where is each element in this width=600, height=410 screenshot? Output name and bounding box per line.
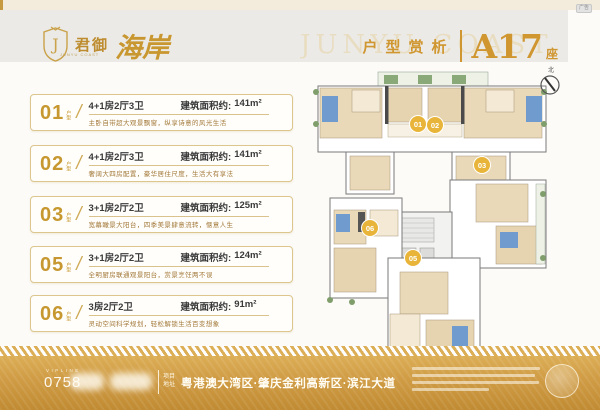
svg-text:06: 06 (366, 224, 374, 233)
unit-number-tag: 户型 (65, 212, 70, 222)
title-divider (460, 30, 462, 62)
divider-slash: / (76, 102, 81, 124)
unit-number-tag: 户型 (65, 311, 70, 321)
footer-stripe-band (0, 346, 600, 356)
disclaimer-line (412, 374, 535, 377)
section-title: 户型赏析 (362, 36, 454, 57)
unit-card-05: 05 户型 / 3+1房2厅2卫建筑面积约:124m² 全明厨房联通观景阳台，赏… (30, 246, 293, 283)
disclaimer-text (412, 367, 540, 395)
spec-underline (89, 216, 269, 217)
brand-seal-icon (545, 364, 579, 398)
unit-number-tag: 户型 (65, 110, 70, 120)
unit-number: 05 (40, 255, 64, 275)
area-label: 建筑面积约: (181, 98, 232, 112)
unit-spec: 4+1房2厅3卫 (89, 98, 181, 112)
spec-underline (89, 165, 269, 166)
unit-number-tag: 户型 (65, 161, 70, 171)
address-tag-line2: 地址 (163, 381, 175, 389)
unit-card-02: 02 户型 / 4+1房2厅3卫建筑面积约:141m² 奢阔大四房配置，豪华居住… (30, 145, 293, 182)
address-tag: 项目 地址 (163, 373, 175, 390)
unit-badge-06: 06 (362, 220, 379, 237)
area-label: 建筑面积约: (181, 250, 232, 264)
footer-divider (158, 370, 159, 394)
unit-card-03: 03 户型 / 3+1房2厅2卫建筑面积约:125m² 宽幕瞰景大阳台，四季美景… (30, 196, 293, 233)
area-value: 125m² (234, 200, 261, 214)
unit-spec: 3房2厅2卫 (89, 299, 181, 313)
building-number: A17 (471, 30, 543, 63)
unit-description: 奢阔大四房配置，豪华居住尺度，生活大有享法 (89, 168, 283, 178)
svg-text:北: 北 (548, 66, 554, 74)
area-label: 建筑面积约: (181, 200, 232, 214)
top-cream-strip (0, 0, 600, 10)
unit-description: 主卧自带超大观景飘窗，纵享诗意的风光生活 (89, 117, 283, 127)
svg-text:03: 03 (478, 161, 486, 170)
area-value: 91m² (234, 299, 256, 313)
unit-number: 06 (40, 304, 64, 324)
floorplan-drawing: 01 02 03 06 05 (300, 62, 550, 350)
footer-gold-bar: VIPLINE 0758 项目 地址 粤港澳大湾区·肇庆金利高新区·滨江大道 (0, 356, 600, 410)
header-band: JUNYU COAST J 君御 海岸 JUNYU COAST 户型赏析 A17… (0, 10, 568, 62)
ad-badge: 广告 (576, 4, 592, 13)
project-address: 粤港澳大湾区·肇庆金利高新区·滨江大道 (181, 375, 396, 391)
unit-number-tag: 户型 (65, 262, 70, 272)
unit-card-06: 06 户型 / 3房2厅2卫建筑面积约:91m² 灵动空间科学规划，轻松解锁生活… (30, 295, 293, 332)
area-label: 建筑面积约: (181, 299, 232, 313)
brand-logo: J 君御 海岸 (42, 24, 169, 68)
unit-spec: 4+1房2厅3卫 (89, 149, 181, 163)
divider-slash: / (76, 254, 81, 276)
area-value: 141m² (234, 149, 261, 163)
area-label: 建筑面积约: (181, 149, 232, 163)
unit-description: 宽幕瞰景大阳台，四季美景肆意流转，惬意人生 (89, 219, 283, 229)
unit-spec: 3+1房2厅2卫 (89, 200, 181, 214)
unit-badge-02: 02 (427, 117, 444, 134)
divider-slash: / (76, 153, 81, 175)
unit-badge-03: 03 (474, 157, 491, 174)
svg-text:01: 01 (414, 120, 422, 129)
unit-badge-01: 01 (410, 116, 427, 133)
disclaimer-line (412, 381, 539, 384)
unit-description: 灵动空间科学规划，轻松解锁生活百变想象 (89, 318, 283, 328)
building-suffix: 座 (546, 45, 558, 62)
spec-underline (89, 315, 269, 316)
address-tag-line1: 项目 (163, 373, 175, 381)
phone-number-blurred (110, 373, 152, 390)
spec-underline (89, 114, 269, 115)
divider-slash: / (76, 303, 81, 325)
area-value: 141m² (234, 98, 261, 112)
svg-text:05: 05 (409, 254, 417, 263)
unit-number: 03 (40, 205, 64, 225)
unit-card-01: 01 户型 / 4+1房2厅3卫建筑面积约:141m² 主卧自带超大观景飘窗，纵… (30, 94, 293, 131)
area-value: 124m² (234, 250, 261, 264)
unit-number: 01 (40, 103, 64, 123)
unit-description: 全明厨房联通观景阳台，赏景烹饪两不误 (89, 269, 283, 279)
disclaimer-line (412, 388, 489, 391)
unit-number: 02 (40, 154, 64, 174)
unit-badge-05: 05 (405, 250, 422, 267)
spec-underline (89, 266, 269, 267)
poster-page: JUNYU COAST J 君御 海岸 JUNYU COAST 户型赏析 A17… (0, 0, 600, 410)
disclaimer-line (412, 367, 540, 370)
divider-slash: / (76, 204, 81, 226)
svg-text:J: J (50, 35, 58, 54)
brand-name-script: 海岸 (115, 26, 169, 65)
brand-name-en: JUNYU COAST (60, 52, 99, 57)
compass-icon: 北 (536, 64, 566, 100)
unit-spec: 3+1房2厅2卫 (89, 250, 181, 264)
phone-number-blurred (70, 373, 104, 390)
svg-text:02: 02 (431, 121, 439, 130)
